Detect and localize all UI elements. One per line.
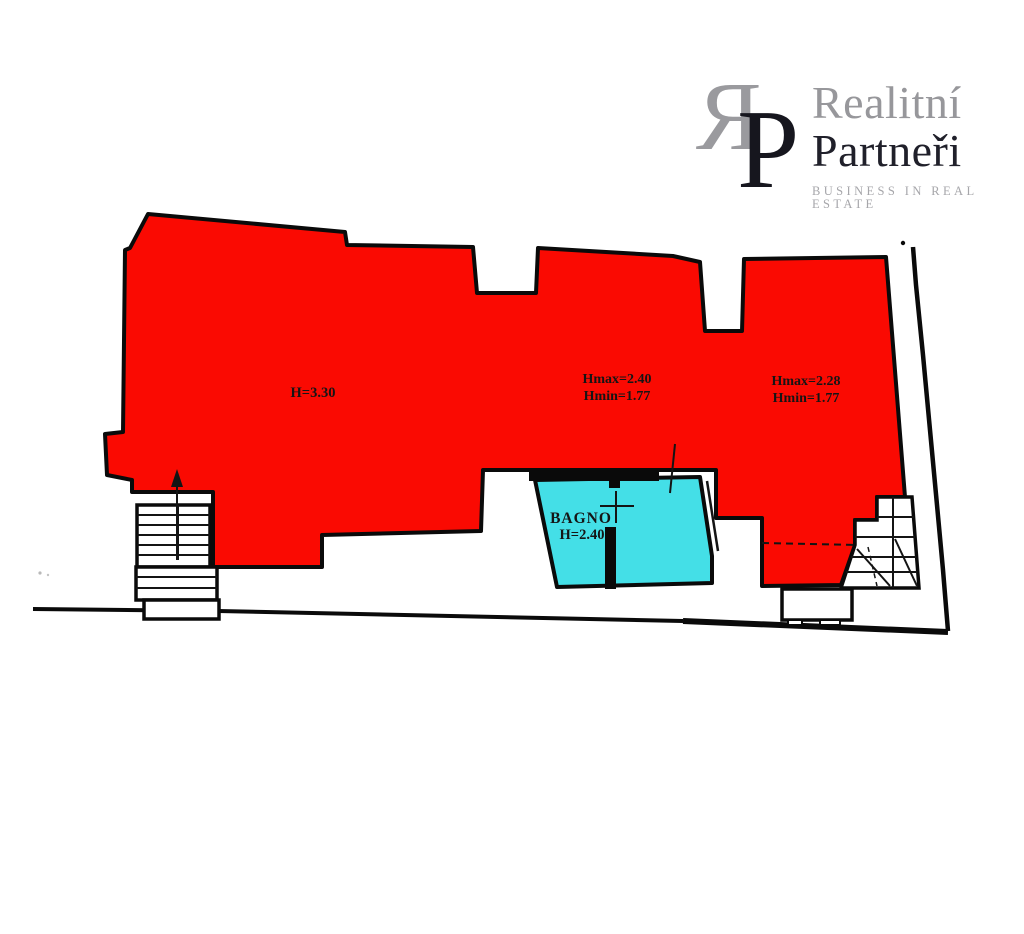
balcony-foot — [788, 620, 802, 625]
balcony — [782, 589, 852, 625]
balcony-foot — [820, 620, 840, 625]
ground-line-right — [683, 621, 948, 632]
middle-room-hmax-label: Hmax=2.40 — [582, 372, 651, 387]
floor-plan: H=3.30 Hmax=2.40 Hmin=1.77 Hmax=2.28 Hmi… — [0, 0, 1024, 934]
ground-line-left — [33, 609, 683, 621]
site-dot — [47, 574, 49, 576]
stair-lower-flight — [136, 567, 217, 600]
bathroom-partition-wall — [605, 527, 616, 589]
left-room-height-label: H=3.30 — [291, 385, 336, 401]
boundary-tick — [901, 241, 905, 245]
bathroom-top-wall — [529, 471, 659, 481]
right-room-hmax-label: Hmax=2.28 — [771, 374, 840, 389]
real-estate-floorplan-page: { "page": { "background": "#ffffff" }, "… — [0, 0, 1024, 934]
bathroom-name-label: BAGNO — [550, 510, 612, 527]
bathroom-height-label: H=2.40 — [560, 527, 605, 543]
stair-bottom-landing — [144, 600, 219, 619]
right-room-hmin-label: Hmin=1.77 — [773, 391, 840, 406]
door-jamb-stub — [609, 471, 620, 488]
site-dot — [38, 571, 41, 574]
middle-room-hmin-label: Hmin=1.77 — [584, 389, 651, 404]
balcony-outline — [782, 589, 852, 620]
